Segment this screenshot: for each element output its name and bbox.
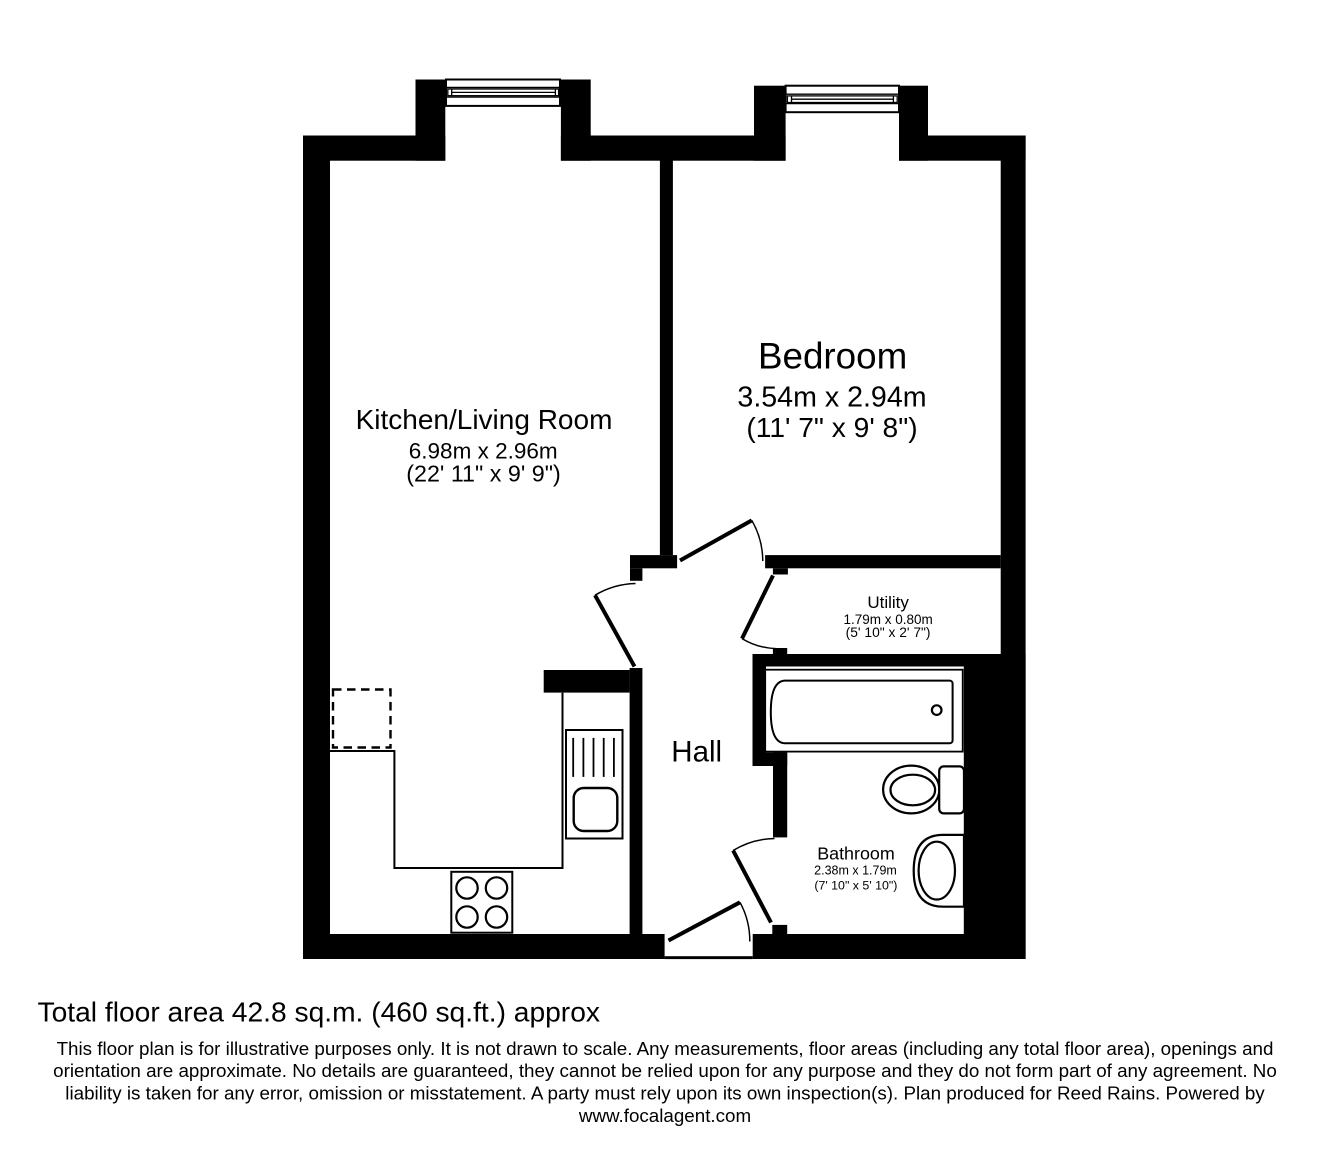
svg-text:orientation are approximate. N: orientation are approximate. No details …: [53, 1060, 1277, 1081]
svg-text:(22' 11" x 9' 9"): (22' 11" x 9' 9"): [406, 460, 561, 486]
svg-text:Bathroom: Bathroom: [817, 844, 895, 864]
svg-text:(5' 10" x 2' 7"): (5' 10" x 2' 7"): [846, 625, 931, 640]
svg-text:Utility: Utility: [867, 593, 909, 612]
svg-text:2.38m x 1.79m: 2.38m x 1.79m: [814, 864, 897, 878]
svg-text:www.focalagent.com: www.focalagent.com: [578, 1105, 751, 1126]
svg-text:Kitchen/Living Room: Kitchen/Living Room: [356, 404, 613, 435]
svg-text:liability is taken for any err: liability is taken for any error, omissi…: [65, 1082, 1265, 1103]
svg-text:Total floor area 42.8 sq.m. (4: Total floor area 42.8 sq.m. (460 sq.ft.)…: [38, 996, 600, 1028]
svg-text:(7' 10" x 5' 10"): (7' 10" x 5' 10"): [814, 878, 897, 892]
svg-text:This floor plan is for illustr: This floor plan is for illustrative purp…: [57, 1038, 1274, 1059]
svg-text:(11' 7" x 9' 8"): (11' 7" x 9' 8"): [746, 411, 917, 443]
svg-text:3.54m x 2.94m: 3.54m x 2.94m: [737, 382, 926, 414]
svg-text:Hall: Hall: [671, 735, 722, 768]
svg-text:Bedroom: Bedroom: [758, 335, 907, 376]
